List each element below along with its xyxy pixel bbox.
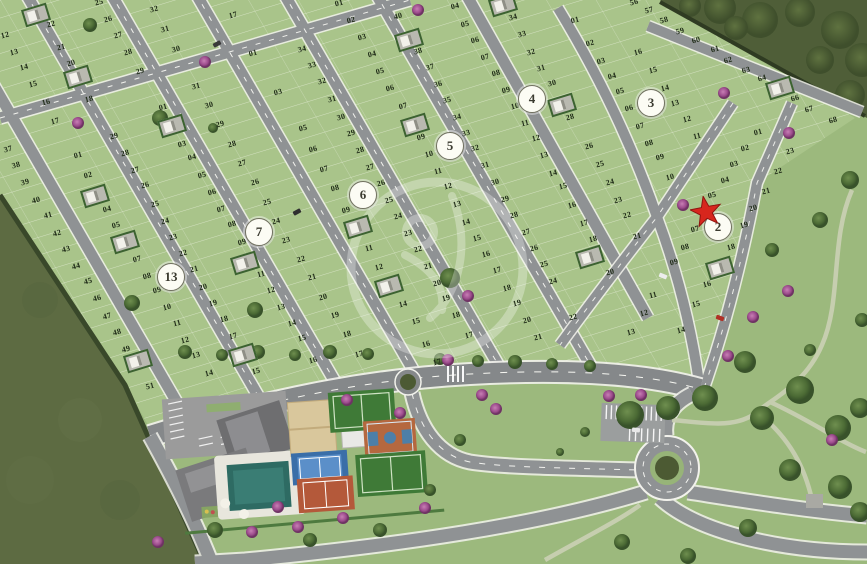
lot-number[interactable]: 14 bbox=[461, 217, 471, 228]
lot-number[interactable]: 15 bbox=[411, 316, 421, 327]
lot-number[interactable]: 22 bbox=[178, 248, 188, 259]
lot-number[interactable]: 16 bbox=[481, 249, 491, 260]
lot-number[interactable]: 24 bbox=[160, 216, 170, 227]
lot-number[interactable]: 05 bbox=[460, 19, 470, 30]
lot-number[interactable]: 11 bbox=[364, 243, 374, 254]
lot-number[interactable]: 14 bbox=[548, 168, 558, 179]
house bbox=[705, 256, 735, 281]
lot-number[interactable]: 20 bbox=[432, 278, 442, 289]
lot-number[interactable]: 25 bbox=[539, 259, 549, 270]
lot-number[interactable]: 07 bbox=[480, 52, 490, 63]
lot-number[interactable]: 17 bbox=[432, 357, 442, 368]
lot-number[interactable]: 58 bbox=[659, 15, 669, 26]
lot-number[interactable]: 23 bbox=[785, 146, 795, 157]
lot-number[interactable]: 09 bbox=[655, 152, 665, 163]
lot-number[interactable]: 01 bbox=[248, 48, 258, 59]
lot-number[interactable]: 17 bbox=[50, 116, 60, 127]
house-roof bbox=[234, 349, 247, 362]
lot-number[interactable]: 30 bbox=[490, 177, 500, 188]
lot-number[interactable]: 15 bbox=[297, 333, 307, 344]
lot-number[interactable]: 60 bbox=[691, 35, 701, 46]
house bbox=[157, 114, 187, 139]
lot-number[interactable]: 07 bbox=[635, 121, 645, 132]
lot-number[interactable]: 19 bbox=[739, 220, 749, 231]
lot-number[interactable]: 18 bbox=[726, 242, 736, 253]
lot-number[interactable]: 28 bbox=[509, 210, 519, 221]
lot-number[interactable]: 34 bbox=[297, 44, 307, 55]
lot-number[interactable]: 25 bbox=[150, 199, 160, 210]
lot-number[interactable]: 23 bbox=[281, 235, 291, 246]
block-badge-5[interactable]: 5 bbox=[436, 132, 464, 160]
lot-number[interactable]: 28 bbox=[123, 47, 133, 58]
labels-layer: 2526272829323130222120181213141516173738… bbox=[0, 0, 867, 564]
lot-number[interactable]: 19 bbox=[208, 298, 218, 309]
lot-number[interactable]: 17 bbox=[354, 349, 364, 360]
lot-number[interactable]: 21 bbox=[56, 42, 66, 53]
house-roof bbox=[163, 120, 176, 133]
lot-number[interactable]: 27 bbox=[521, 227, 531, 238]
lot-number[interactable]: 11 bbox=[433, 166, 443, 177]
lot-number[interactable]: 27 bbox=[237, 158, 247, 169]
house-roof bbox=[236, 257, 249, 270]
lot-number[interactable]: 21 bbox=[189, 264, 199, 275]
lot-number[interactable]: 11 bbox=[692, 131, 702, 142]
lot-number[interactable]: 22 bbox=[568, 312, 578, 323]
lot-number[interactable]: 08 bbox=[142, 271, 152, 282]
lot-number[interactable]: 23 bbox=[613, 195, 623, 206]
lot-number[interactable]: 30 bbox=[336, 112, 346, 123]
lot-number[interactable]: 25 bbox=[595, 159, 605, 170]
lot-number[interactable]: 29 bbox=[346, 128, 356, 139]
lot-number[interactable]: 05 bbox=[197, 170, 207, 181]
lot-number[interactable]: 20 bbox=[66, 58, 76, 69]
lot-number[interactable]: 15 bbox=[648, 65, 658, 76]
lot-number[interactable]: 02 bbox=[346, 15, 356, 26]
block-badge-13[interactable]: 13 bbox=[157, 263, 185, 291]
house-roof bbox=[711, 262, 724, 275]
lot-number[interactable]: 61 bbox=[710, 44, 720, 55]
lot-number[interactable]: 36 bbox=[433, 79, 443, 90]
lot-number[interactable]: 20 bbox=[748, 203, 758, 214]
lot-number[interactable]: 29 bbox=[109, 131, 119, 142]
house-roof bbox=[27, 9, 40, 22]
lot-number[interactable]: 22 bbox=[296, 254, 306, 265]
lot-number[interactable]: 38 bbox=[11, 160, 21, 171]
lot-number[interactable]: 20 bbox=[318, 292, 328, 303]
lot-number[interactable]: 23 bbox=[403, 228, 413, 239]
lot-number[interactable]: 09 bbox=[669, 257, 679, 268]
lot-number[interactable]: 12 bbox=[531, 133, 541, 144]
lot-number[interactable]: 28 bbox=[565, 112, 575, 123]
lot-number[interactable]: 20 bbox=[522, 315, 532, 326]
lot-number[interactable]: 13 bbox=[191, 350, 201, 361]
lot-number[interactable]: 26 bbox=[250, 177, 260, 188]
lot-number[interactable]: 17 bbox=[492, 265, 502, 276]
lot-number[interactable]: 29 bbox=[135, 66, 145, 77]
lot-number[interactable]: 26 bbox=[584, 141, 594, 152]
lot-number[interactable]: 11 bbox=[256, 269, 266, 280]
lot-number[interactable]: 44 bbox=[71, 261, 81, 272]
lot-number[interactable]: 13 bbox=[539, 150, 549, 161]
selected-lot-marker[interactable] bbox=[690, 196, 722, 228]
lot-number[interactable]: 48 bbox=[112, 327, 122, 338]
lot-number[interactable]: 07 bbox=[132, 254, 142, 265]
lot-number[interactable]: 62 bbox=[723, 55, 733, 66]
lot-number[interactable]: 24 bbox=[548, 276, 558, 287]
lot-number[interactable]: 03 bbox=[357, 32, 367, 43]
lot-number[interactable]: 12 bbox=[0, 30, 10, 41]
lot-number[interactable]: 04 bbox=[367, 49, 377, 60]
lot-number[interactable]: 16 bbox=[41, 97, 51, 108]
lot-number[interactable]: 29 bbox=[500, 194, 510, 205]
lot-number[interactable]: 30 bbox=[171, 44, 181, 55]
lot-number[interactable]: 13 bbox=[670, 98, 680, 109]
lot-number[interactable]: 24 bbox=[393, 211, 403, 222]
house bbox=[374, 274, 404, 299]
block-badge-4[interactable]: 4 bbox=[518, 85, 546, 113]
block-badge-3[interactable]: 3 bbox=[637, 89, 665, 117]
lot-number[interactable]: 04 bbox=[720, 175, 730, 186]
lot-number[interactable]: 21 bbox=[533, 332, 543, 343]
lot-number[interactable]: 10 bbox=[162, 302, 172, 313]
house bbox=[575, 245, 605, 270]
lot-number[interactable]: 32 bbox=[526, 47, 536, 58]
lot-number[interactable]: 26 bbox=[376, 178, 386, 189]
lot-number[interactable]: 59 bbox=[675, 26, 685, 37]
lot-number[interactable]: 14 bbox=[204, 368, 214, 379]
lot-number[interactable]: 16 bbox=[567, 200, 577, 211]
lot-number[interactable]: 34 bbox=[508, 12, 518, 23]
lot-number[interactable]: 16 bbox=[308, 355, 318, 366]
lot-number[interactable]: 16 bbox=[633, 47, 643, 58]
lot-number[interactable]: 28 bbox=[355, 145, 365, 156]
lot-number[interactable]: 45 bbox=[83, 276, 93, 287]
house bbox=[228, 343, 258, 368]
lot-number[interactable]: 04 bbox=[187, 152, 197, 163]
lot-number[interactable]: 19 bbox=[512, 298, 522, 309]
lot-number[interactable]: 31 bbox=[327, 94, 337, 105]
lot-number[interactable]: 13 bbox=[276, 302, 286, 313]
lot-number[interactable]: 18 bbox=[219, 314, 229, 325]
lot-number[interactable]: 17 bbox=[464, 330, 474, 341]
lot-number[interactable]: 11 bbox=[648, 290, 658, 301]
house-roof bbox=[349, 221, 362, 234]
lot-number[interactable]: 15 bbox=[251, 366, 261, 377]
house-roof bbox=[86, 190, 99, 203]
lot-number[interactable]: 11 bbox=[172, 318, 182, 329]
house-roof bbox=[406, 119, 419, 132]
lot-number[interactable]: 31 bbox=[191, 81, 201, 92]
lot-number[interactable]: 09 bbox=[341, 205, 351, 216]
lot-number[interactable]: 29 bbox=[215, 119, 225, 130]
lot-number[interactable]: 40 bbox=[31, 195, 41, 206]
lot-number[interactable]: 18 bbox=[451, 310, 461, 321]
lot-number[interactable]: 02 bbox=[83, 170, 93, 181]
house-roof bbox=[116, 236, 129, 249]
lot-number[interactable]: 03 bbox=[177, 139, 187, 150]
house bbox=[110, 230, 140, 255]
lot-number[interactable]: 26 bbox=[103, 14, 113, 25]
lot-number[interactable]: 35 bbox=[442, 95, 452, 106]
lot-number[interactable]: 06 bbox=[308, 144, 318, 155]
lot-number[interactable]: 01 bbox=[753, 127, 763, 138]
lot-number[interactable]: 25 bbox=[262, 197, 272, 208]
lot-number[interactable]: 27 bbox=[130, 165, 140, 176]
block-badge-6[interactable]: 6 bbox=[349, 181, 377, 209]
lot-number[interactable]: 04 bbox=[450, 1, 460, 12]
lot-number[interactable]: 21 bbox=[307, 272, 317, 283]
house-roof bbox=[553, 99, 566, 112]
lot-number[interactable]: 13 bbox=[452, 199, 462, 210]
lot-number[interactable]: 67 bbox=[804, 104, 814, 115]
lot-number[interactable]: 05 bbox=[375, 66, 385, 77]
lot-number[interactable]: 14 bbox=[676, 325, 686, 336]
lot-number[interactable]: 33 bbox=[461, 128, 471, 139]
house-roof bbox=[69, 71, 82, 84]
lot-number[interactable]: 14 bbox=[19, 62, 29, 73]
lot-number[interactable]: 14 bbox=[287, 318, 297, 329]
lot-number[interactable]: 40 bbox=[393, 11, 403, 22]
lot-number[interactable]: 28 bbox=[120, 148, 130, 159]
lot-number[interactable]: 01 bbox=[334, 0, 344, 8]
lot-number[interactable]: 22 bbox=[773, 166, 783, 177]
lot-number[interactable]: 12 bbox=[374, 262, 384, 273]
lot-number[interactable]: 37 bbox=[425, 62, 435, 73]
lot-number[interactable]: 37 bbox=[3, 144, 13, 155]
lot-number[interactable]: 08 bbox=[227, 219, 237, 230]
lot-number[interactable]: 56 bbox=[629, 0, 639, 7]
lot-number[interactable]: 24 bbox=[605, 177, 615, 188]
lot-number[interactable]: 15 bbox=[691, 299, 701, 310]
lot-number[interactable]: 19 bbox=[441, 293, 451, 304]
house bbox=[343, 215, 373, 240]
lot-number[interactable]: 31 bbox=[160, 24, 170, 35]
lot-number[interactable]: 12 bbox=[682, 114, 692, 125]
lot-number[interactable]: 21 bbox=[632, 231, 642, 242]
lot-number[interactable]: 08 bbox=[491, 68, 501, 79]
lot-number[interactable]: 18 bbox=[342, 329, 352, 340]
lot-number[interactable]: 68 bbox=[828, 115, 838, 126]
lot-number[interactable]: 21 bbox=[423, 261, 433, 272]
lot-number[interactable]: 02 bbox=[585, 38, 595, 49]
lot-number[interactable]: 22 bbox=[622, 210, 632, 221]
lot-number[interactable]: 25 bbox=[94, 0, 104, 7]
lot-number[interactable]: 04 bbox=[607, 71, 617, 82]
lot-number[interactable]: 18 bbox=[588, 234, 598, 245]
lot-number[interactable]: 22 bbox=[413, 244, 423, 255]
lot-number[interactable]: 08 bbox=[330, 183, 340, 194]
lot-number[interactable]: 01 bbox=[158, 102, 168, 113]
lot-number[interactable]: 43 bbox=[61, 244, 71, 255]
lot-number[interactable]: 26 bbox=[529, 243, 539, 254]
lot-number[interactable]: 63 bbox=[741, 65, 751, 76]
lot-number[interactable]: 07 bbox=[216, 204, 226, 215]
lot-number[interactable]: 19 bbox=[330, 310, 340, 321]
lot-number[interactable]: 32 bbox=[470, 143, 480, 154]
lot-number[interactable]: 06 bbox=[624, 103, 634, 114]
lot-number[interactable]: 03 bbox=[273, 87, 283, 98]
lot-number[interactable]: 05 bbox=[615, 86, 625, 97]
lot-number[interactable]: 12 bbox=[443, 181, 453, 192]
lot-number[interactable]: 05 bbox=[298, 123, 308, 134]
lot-number[interactable]: 10 bbox=[424, 149, 434, 160]
lot-number[interactable]: 02 bbox=[740, 143, 750, 154]
lot-number[interactable]: 04 bbox=[102, 204, 112, 215]
lot-number[interactable]: 66 bbox=[790, 93, 800, 104]
lot-number[interactable]: 06 bbox=[470, 35, 480, 46]
lot-number[interactable]: 33 bbox=[307, 60, 317, 71]
lot-number[interactable]: 09 bbox=[501, 85, 511, 96]
house bbox=[400, 113, 430, 138]
lot-number[interactable]: 30 bbox=[547, 78, 557, 89]
lot-number[interactable]: 08 bbox=[644, 138, 654, 149]
lot-number[interactable]: 33 bbox=[517, 29, 527, 40]
lot-number[interactable]: 49 bbox=[121, 344, 131, 355]
lot-number[interactable]: 13 bbox=[626, 327, 636, 338]
lot-number[interactable]: 51 bbox=[145, 381, 155, 392]
lot-number[interactable]: 06 bbox=[207, 187, 217, 198]
lot-number[interactable]: 47 bbox=[102, 311, 112, 322]
lot-number[interactable]: 32 bbox=[317, 76, 327, 87]
lot-number[interactable]: 39 bbox=[20, 177, 30, 188]
lot-number[interactable]: 30 bbox=[204, 100, 214, 111]
lot-number[interactable]: 14 bbox=[398, 299, 408, 310]
lot-number[interactable]: 42 bbox=[52, 228, 62, 239]
lot-number[interactable]: 31 bbox=[536, 63, 546, 74]
lot-number[interactable]: 15 bbox=[472, 233, 482, 244]
lot-number[interactable]: 23 bbox=[168, 232, 178, 243]
lot-number[interactable]: 31 bbox=[480, 160, 490, 171]
house-roof bbox=[581, 251, 594, 264]
lot-number[interactable]: 20 bbox=[605, 267, 615, 278]
house-roof bbox=[129, 355, 142, 368]
lot-number[interactable]: 12 bbox=[180, 335, 190, 346]
lot-number[interactable]: 07 bbox=[398, 101, 408, 112]
lot-number[interactable]: 24 bbox=[271, 216, 281, 227]
lot-number[interactable]: 25 bbox=[384, 195, 394, 206]
lot-number[interactable]: 34 bbox=[452, 112, 462, 123]
site-map: 2526272829323130222120181213141516173738… bbox=[0, 0, 867, 564]
lot-number[interactable]: 08 bbox=[680, 242, 690, 253]
lot-number[interactable]: 05 bbox=[111, 220, 121, 231]
lot-number[interactable]: 15 bbox=[28, 79, 38, 90]
lot-number[interactable]: 14 bbox=[660, 83, 670, 94]
house-roof bbox=[771, 82, 784, 95]
lot-number[interactable]: 26 bbox=[140, 180, 150, 191]
lot-number[interactable]: 41 bbox=[43, 210, 53, 221]
lot-number[interactable]: 46 bbox=[92, 293, 102, 304]
lot-number[interactable]: 12 bbox=[266, 285, 276, 296]
lot-number[interactable]: 57 bbox=[644, 5, 654, 16]
lot-number[interactable]: 17 bbox=[579, 218, 589, 229]
lot-number[interactable]: 12 bbox=[639, 308, 649, 319]
house-roof bbox=[400, 34, 413, 47]
house-roof bbox=[494, 0, 507, 12]
block-badge-7[interactable]: 7 bbox=[245, 218, 273, 246]
lot-number[interactable]: 01 bbox=[73, 150, 83, 161]
lot-number[interactable]: 28 bbox=[227, 139, 237, 150]
lot-number[interactable]: 21 bbox=[761, 186, 771, 197]
lot-number[interactable]: 15 bbox=[558, 181, 568, 192]
lot-number[interactable]: 18 bbox=[84, 94, 94, 105]
lot-number[interactable]: 32 bbox=[149, 4, 159, 15]
house-roof bbox=[380, 280, 393, 293]
lot-number[interactable]: 03 bbox=[729, 159, 739, 170]
lot-number[interactable]: 27 bbox=[365, 162, 375, 173]
lot-number[interactable]: 27 bbox=[113, 30, 123, 41]
lot-number[interactable]: 10 bbox=[665, 172, 675, 183]
lot-number[interactable]: 11 bbox=[520, 118, 530, 129]
lot-number[interactable]: 03 bbox=[596, 56, 606, 67]
lot-number[interactable]: 17 bbox=[228, 10, 238, 21]
lot-number[interactable]: 17 bbox=[228, 331, 238, 342]
lot-number[interactable]: 13 bbox=[9, 47, 19, 58]
lot-number[interactable]: 07 bbox=[319, 164, 329, 175]
lot-number[interactable]: 16 bbox=[421, 339, 431, 350]
lot-number[interactable]: 20 bbox=[198, 282, 208, 293]
lot-number[interactable]: 18 bbox=[502, 283, 512, 294]
lot-number[interactable]: 01 bbox=[570, 15, 580, 26]
lot-number[interactable]: 06 bbox=[385, 83, 395, 94]
